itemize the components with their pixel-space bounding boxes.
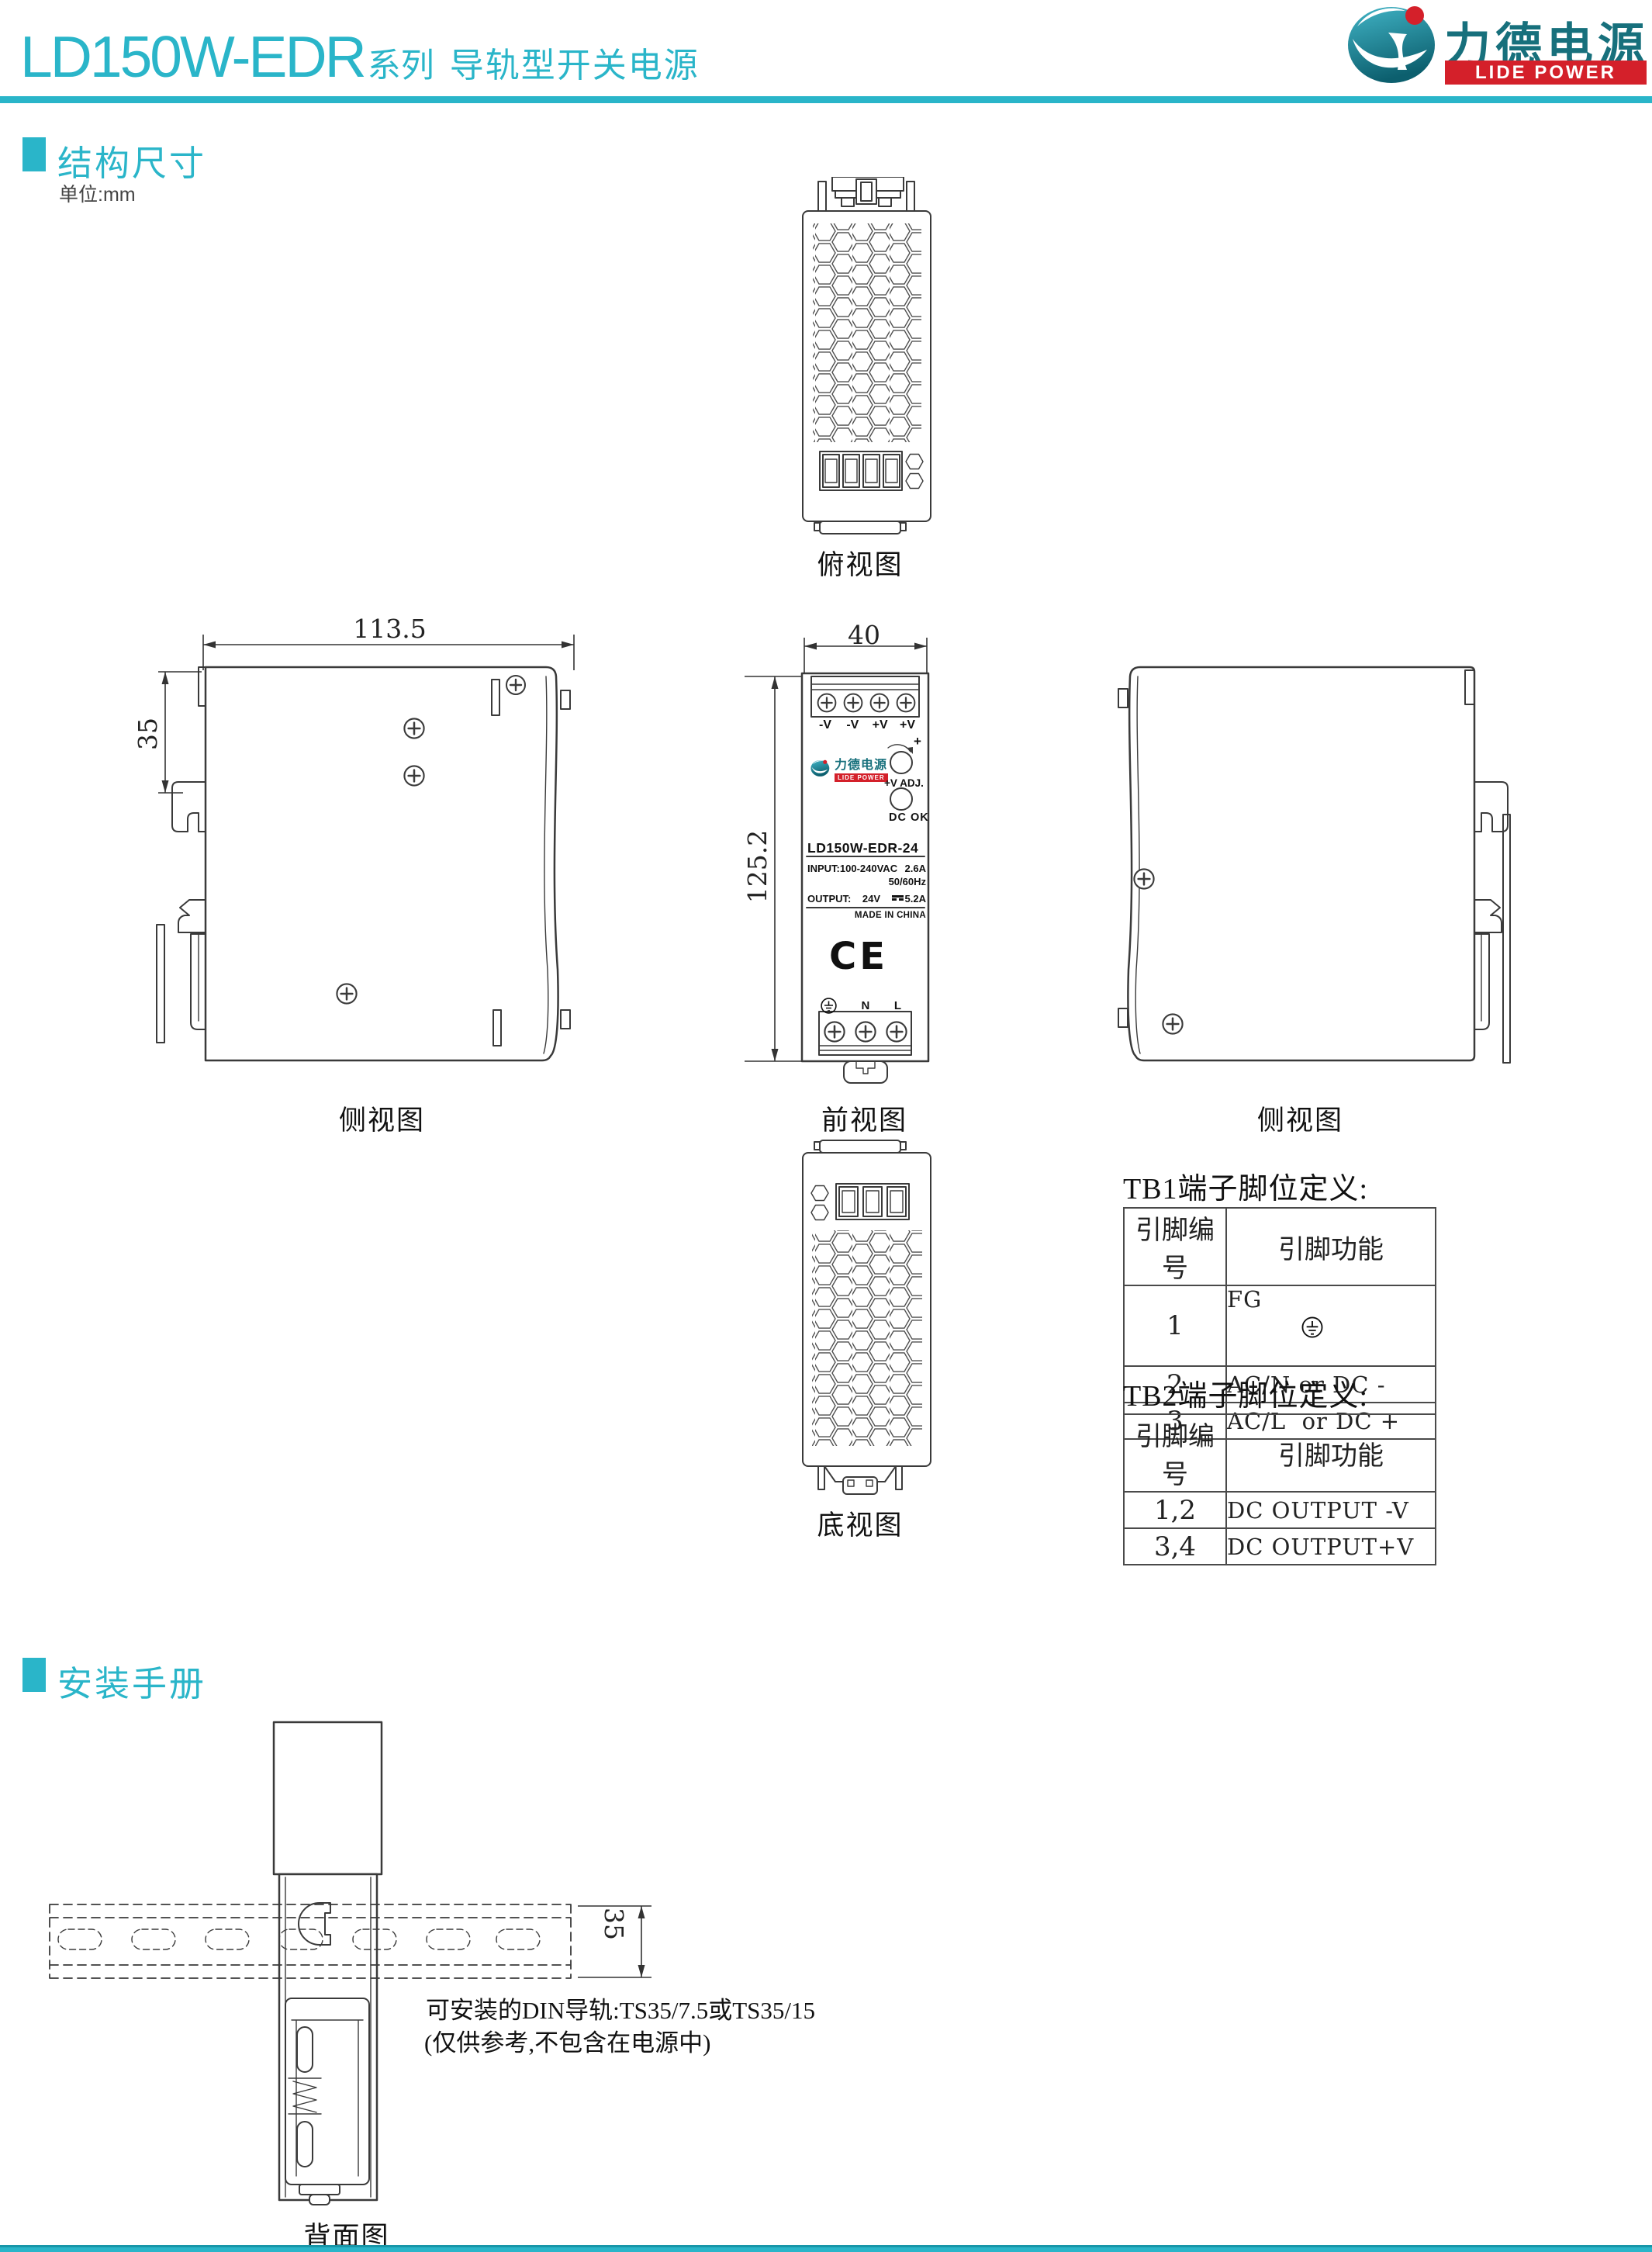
terminal-n-label: N bbox=[861, 999, 869, 1012]
input-frequency: 50/60Hz bbox=[807, 876, 926, 887]
install-note-2: (仅供参考,不包含在电源中) bbox=[424, 2023, 710, 2058]
made-in-label: MADE IN CHINA bbox=[807, 911, 926, 920]
vent-honeycomb bbox=[813, 223, 921, 442]
front-view-label: 前视图 bbox=[800, 1098, 928, 1138]
input-rating-row: INPUT:100-240VAC 2.6A bbox=[807, 863, 926, 874]
section-install-title: 安装手册 bbox=[57, 1655, 206, 1706]
top-view-drawing bbox=[778, 177, 942, 535]
table-header-row: 引脚编号 引脚功能 bbox=[1124, 1414, 1436, 1492]
terminal-label: -V bbox=[813, 718, 838, 732]
output-voltage: 24V bbox=[862, 893, 880, 905]
dim-front-width: 40 bbox=[825, 620, 903, 651]
spring-clip-detail bbox=[285, 1998, 369, 2205]
front-panel-logo-icon bbox=[810, 756, 831, 780]
vent-honeycomb bbox=[812, 1230, 922, 1446]
terminal-label: +V bbox=[895, 718, 920, 732]
dim-install-rail: 35 bbox=[598, 1877, 629, 1970]
adjust-label: +V ADJ. bbox=[884, 777, 924, 789]
page-title-series: 系列 bbox=[368, 39, 434, 87]
output-label: OUTPUT: bbox=[807, 893, 851, 905]
pin-function: DC OUTPUT+V bbox=[1226, 1528, 1436, 1565]
output-rating-row: OUTPUT: 24V 5.2A bbox=[807, 893, 926, 905]
dim-front-height: 125.2 bbox=[742, 812, 773, 921]
bottom-view-drawing bbox=[778, 1134, 942, 1499]
output-current: 5.2A bbox=[905, 893, 926, 905]
dim-side-width: 113.5 bbox=[326, 614, 454, 645]
page-title-desc: 导轨型开关电源 bbox=[450, 37, 700, 87]
terminal-label: +V bbox=[868, 718, 893, 732]
side-view-right-drawing bbox=[1117, 659, 1528, 1071]
pin-function: DC OUTPUT -V bbox=[1226, 1492, 1436, 1528]
section-install-square bbox=[22, 1658, 46, 1692]
ce-mark: CE bbox=[820, 935, 897, 978]
install-note-1: 可安装的DIN导轨:TS35/7.5或TS35/15 bbox=[426, 1991, 815, 2025]
earth-ground-icon bbox=[1301, 1316, 1323, 1338]
page-title: LD150W-EDR 系列 导轨型开关电源 bbox=[20, 23, 700, 90]
tb2-table-title: TB2端子脚位定义: bbox=[1123, 1372, 1368, 1414]
din-rail-clip bbox=[1474, 782, 1510, 1063]
tb2-col2-header: 引脚功能 bbox=[1226, 1414, 1436, 1492]
header-divider bbox=[0, 96, 1652, 103]
tb2-col1-header: 引脚编号 bbox=[1124, 1414, 1226, 1492]
page-title-model: LD150W-EDR bbox=[20, 23, 365, 90]
input-current: 2.6A bbox=[905, 863, 926, 874]
datasheet-page: LD150W-EDR 系列 导轨型开关电源 力德电源 LIDE POWER 结构… bbox=[0, 0, 1652, 2252]
din-rail-clip bbox=[157, 782, 206, 1043]
front-terminal-labels-bottom: N L bbox=[821, 998, 901, 1014]
section-structure-title: 结构尺寸 bbox=[57, 135, 206, 185]
pin-function-text: FG bbox=[1227, 1286, 1262, 1313]
pin-function: FG bbox=[1226, 1285, 1436, 1366]
top-view-label: 俯视图 bbox=[798, 543, 922, 583]
tb1-col1-header: 引脚编号 bbox=[1124, 1208, 1226, 1285]
tb1-table-title: TB1端子脚位定义: bbox=[1123, 1164, 1368, 1207]
install-drawing bbox=[47, 1711, 667, 2219]
front-terminal-labels-top: -V -V +V +V bbox=[813, 718, 920, 732]
front-panel-logo: 力德电源 LIDE POWER bbox=[810, 754, 888, 782]
table-row: 1 FG bbox=[1124, 1285, 1436, 1366]
dc-ok-label: DC OK bbox=[889, 811, 929, 824]
tb1-col2-header: 引脚功能 bbox=[1226, 1208, 1436, 1285]
table-header-row: 引脚编号 引脚功能 bbox=[1124, 1208, 1436, 1285]
pin-number: 1 bbox=[1124, 1285, 1226, 1366]
side-view-right-label: 侧视图 bbox=[1236, 1098, 1364, 1138]
footer-bar bbox=[0, 2245, 1652, 2252]
pin-number: 1,2 bbox=[1124, 1492, 1226, 1528]
adjust-plus-sign: + bbox=[914, 734, 921, 749]
terminal-label: -V bbox=[840, 718, 865, 732]
tb2-pin-table: 引脚编号 引脚功能 1,2 DC OUTPUT -V 3,4 DC OUTPUT… bbox=[1123, 1413, 1436, 1565]
table-row: 3,4 DC OUTPUT+V bbox=[1124, 1528, 1436, 1565]
model-label: LD150W-EDR-24 bbox=[807, 840, 928, 856]
side-view-left-label: 侧视图 bbox=[318, 1098, 446, 1138]
front-panel-logo-cn: 力德电源 bbox=[835, 754, 888, 773]
brand-logo-icon bbox=[1346, 3, 1441, 84]
section-structure-square bbox=[22, 137, 46, 171]
front-panel-logo-en: LIDE POWER bbox=[835, 773, 888, 782]
terminal-l-label: L bbox=[894, 999, 901, 1012]
earth-ground-icon bbox=[821, 998, 837, 1014]
side-view-left-drawing bbox=[140, 659, 582, 1067]
unit-label: 单位:mm bbox=[59, 179, 136, 207]
bottom-view-label: 底视图 bbox=[798, 1503, 922, 1543]
brand-logo-name-en: LIDE POWER bbox=[1445, 61, 1647, 85]
input-label: INPUT:100-240VAC bbox=[807, 863, 897, 874]
pin-number: 3,4 bbox=[1124, 1528, 1226, 1565]
dc-symbol bbox=[892, 895, 904, 905]
table-row: 1,2 DC OUTPUT -V bbox=[1124, 1492, 1436, 1528]
dim-side-rail: 35 bbox=[133, 687, 164, 780]
